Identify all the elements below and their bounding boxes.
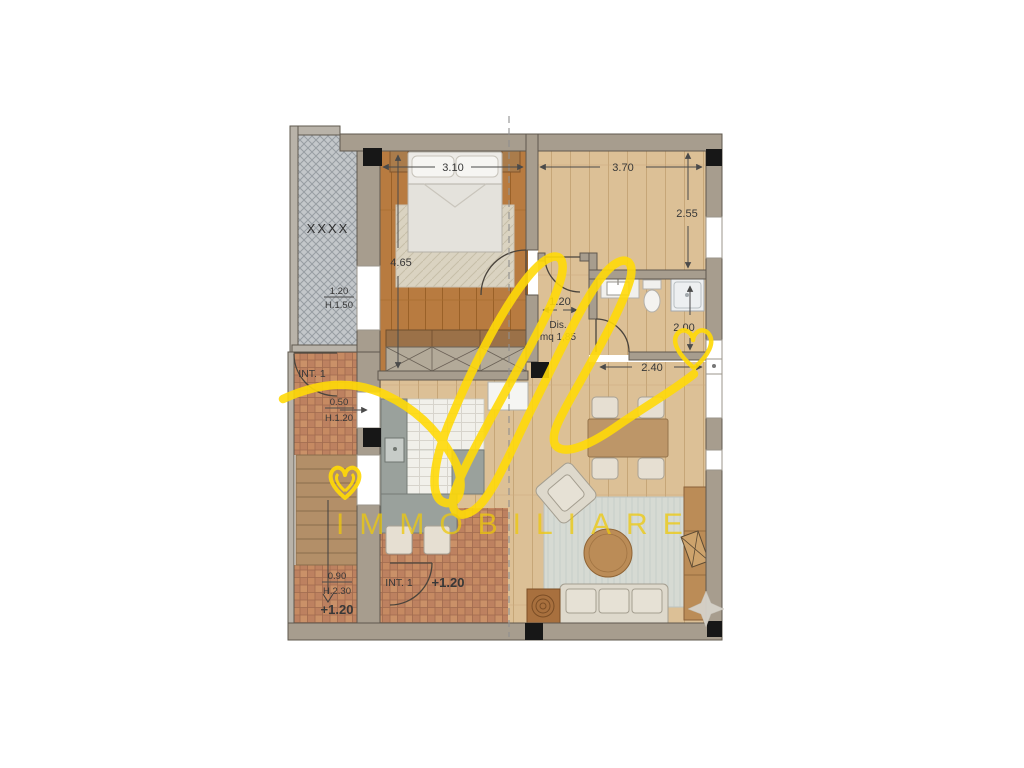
door-height-label: H.2.30 <box>323 586 351 597</box>
window <box>706 217 722 258</box>
balcony-left-wall <box>290 126 298 352</box>
window-height-label: H.1.20 <box>325 413 353 424</box>
window-width-label: 0.50 <box>330 397 349 408</box>
pillar <box>363 428 381 447</box>
pillar <box>707 621 722 637</box>
dining-chair <box>592 458 618 479</box>
french-window <box>357 266 380 330</box>
interior-label-upper: INT. 1 <box>298 368 326 380</box>
end-table <box>527 589 560 623</box>
sofa <box>560 584 668 628</box>
balcony-sill-height-label: H.1.50 <box>325 300 353 311</box>
balcony-floor <box>298 135 357 345</box>
wardrobe <box>386 330 526 371</box>
hall-name-label: Dis. <box>549 320 566 331</box>
balcony-label: XXXX <box>307 221 350 236</box>
dim-living-depth-label: 2.55 <box>676 208 697 220</box>
dim-living-width-label: 3.70 <box>612 162 633 174</box>
level-label-entry: +1.20 <box>432 575 465 590</box>
bedroom-kitchen-wall <box>378 371 528 380</box>
dining-chair <box>592 397 618 418</box>
dim-bedroom-width-label: 3.10 <box>442 162 463 174</box>
floor-plan-page: 3.10 4.65 3.70 2.55 2.00 2.40 <box>0 0 1024 768</box>
bathroom-south-wall <box>629 352 706 360</box>
nightstand-right <box>502 151 520 172</box>
pillar <box>363 148 382 166</box>
window <box>706 450 722 470</box>
door-width-label: 0.90 <box>328 571 347 582</box>
dining-chair <box>638 458 664 479</box>
toilet <box>643 280 661 312</box>
dim-bedroom-depth-label: 4.65 <box>390 257 411 269</box>
bedroom-east-wall <box>526 134 538 250</box>
level-label-stair: +1.20 <box>321 602 354 617</box>
balcony-sill-width-label: 1.20 <box>330 286 349 297</box>
nightstand-left <box>390 151 408 172</box>
bottom-wall <box>288 623 722 640</box>
faucet-icon <box>393 447 397 451</box>
dim-bath-width-label: 2.40 <box>641 362 662 374</box>
watermark-brand-text: IMMOBILIARE <box>336 508 698 541</box>
balcony-bottom-wall <box>292 345 357 352</box>
hinge-dot-icon <box>712 364 716 368</box>
shower <box>671 279 704 311</box>
pillar <box>706 149 722 166</box>
interior-label-lower: INT. 1 <box>385 577 413 589</box>
window <box>706 374 722 418</box>
pillar <box>525 623 543 640</box>
hall-north-wall <box>580 253 589 261</box>
floor-plan-drawing: 3.10 4.65 3.70 2.55 2.00 2.40 <box>0 0 1024 768</box>
